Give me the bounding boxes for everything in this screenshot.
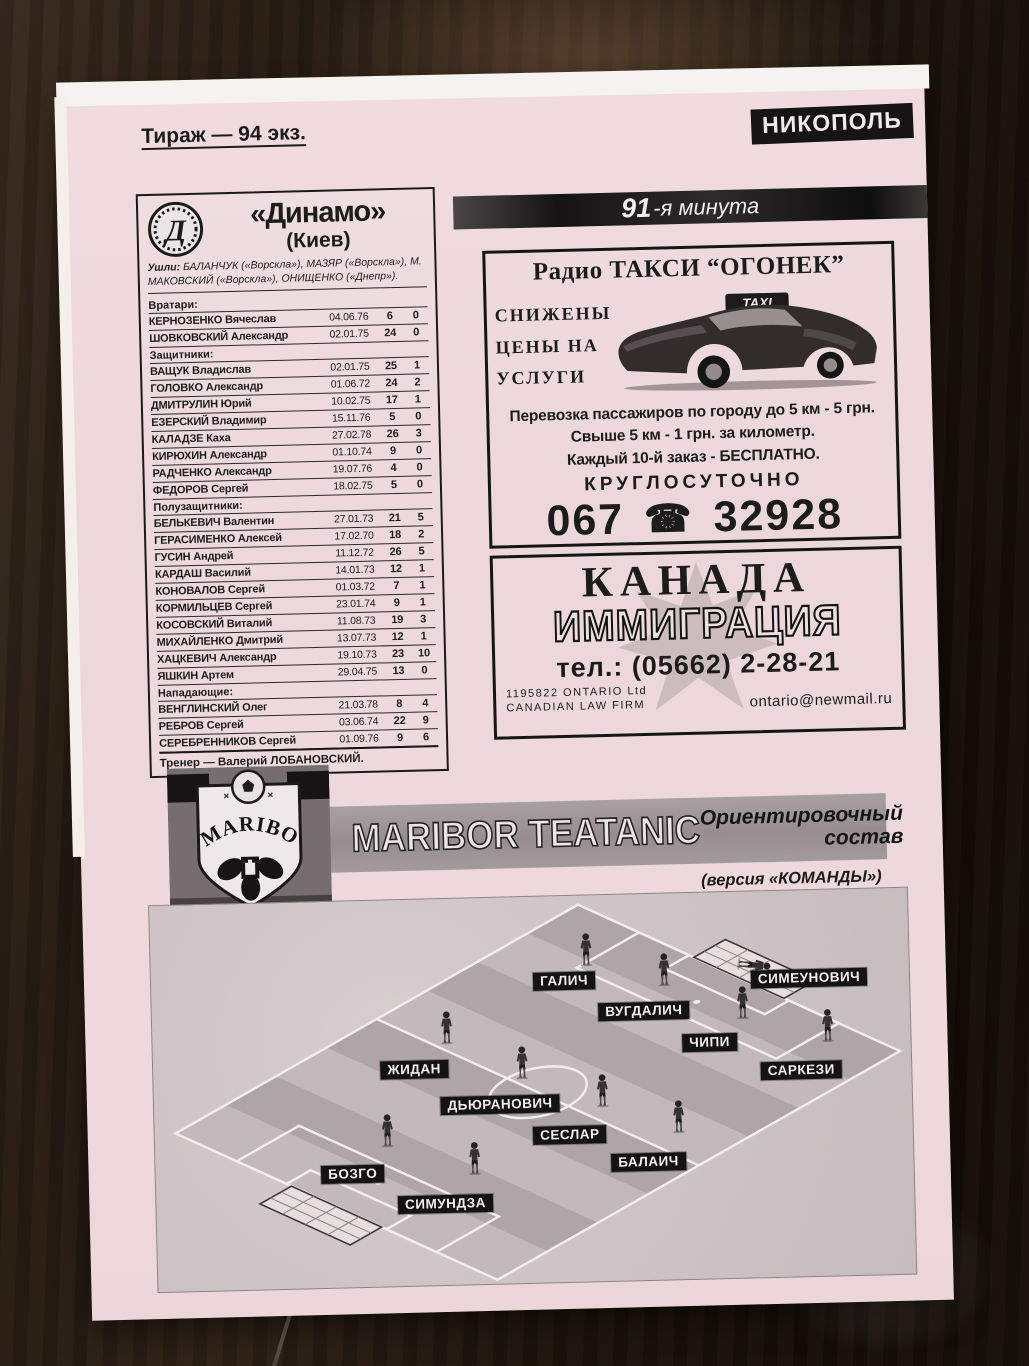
- taxi-slogan-line: СНИЖЕНЫ: [494, 298, 613, 332]
- player-caps: 21: [381, 512, 409, 525]
- player-caps: 24: [376, 327, 404, 340]
- lineup-pitch-figure: СИМЕУНОВИЧГАЛИЧВУГДАЛИЧЧИПИСАРКЕЗИЖИДАНД…: [148, 887, 917, 1293]
- player-caps: 5: [378, 411, 406, 424]
- player-goals: 5: [409, 545, 433, 558]
- player-birthdate: 27.01.73: [327, 513, 381, 526]
- program-page: Тираж — 94 экз. НИКОПОЛЬ Д «Динамо» (Кие…: [62, 74, 954, 1321]
- player-birthdate: 19.07.76: [325, 463, 379, 476]
- player-name: ГОЛОВКО Александр: [150, 379, 323, 395]
- roster: Вратари:КЕРНОЗЕНКО Вячеслав04.06.7660ШОВ…: [148, 291, 438, 753]
- player-name: РЕБРОВ Сергей: [159, 717, 332, 733]
- player-birthdate: 01.09.76: [332, 733, 386, 746]
- player-name: КОНОВАЛОВ Сергей: [155, 582, 328, 598]
- probable-lineup-label: Ориентировочный состав: [700, 803, 904, 853]
- taxi-car-area: TAXI: [612, 280, 887, 404]
- player-caps: 25: [377, 360, 405, 373]
- player-goals: 2: [405, 376, 429, 389]
- player-label: СИМЕУНОВИЧ: [751, 968, 868, 989]
- player-caps: 9: [386, 732, 414, 745]
- player-birthdate: 19.10.73: [330, 649, 384, 662]
- taxi-phone: 067 ☎ 32928: [499, 489, 890, 548]
- player-caps: 18: [381, 529, 409, 542]
- taxi-ad: Радио ТАКСИ “ОГОНЕК” СНИЖЕНЫ ЦЕНЫ НА УСЛ…: [482, 241, 901, 549]
- player-birthdate: 18.02.75: [326, 480, 380, 493]
- player-birthdate: 29.04.75: [330, 666, 384, 679]
- player-name: РАДЧЕНКО Александр: [152, 464, 325, 480]
- banner-number: 91: [621, 193, 652, 225]
- player-name: ФЕДОРОВ Сергей: [153, 481, 326, 497]
- canada-immigration-ad: КАНАДА ИММИГРАЦИЯ тел.: (05662) 2-28-21 …: [490, 546, 906, 740]
- player-name: ЕЗЕРСКИЙ Владимир: [151, 413, 324, 429]
- player-birthdate: 11.08.73: [329, 615, 383, 628]
- player-caps: 8: [385, 698, 413, 711]
- player-goals: 9: [414, 714, 438, 727]
- player-goals: 0: [407, 444, 431, 457]
- player-birthdate: 15.11.76: [324, 412, 378, 425]
- player-name: КАРДАШ Василий: [155, 565, 328, 581]
- player-caps: 26: [379, 428, 407, 441]
- team-city: (Киев): [211, 226, 427, 255]
- departures-label: Ушли:: [147, 261, 180, 274]
- dynamo-titles: «Динамо» (Киев): [210, 196, 426, 255]
- player-caps: 24: [377, 377, 405, 390]
- player-goals: 0: [406, 410, 430, 423]
- player-caps: 5: [380, 479, 408, 492]
- player-goals: 10: [412, 647, 436, 660]
- player-caps: 12: [382, 563, 410, 576]
- player-name: ГЕРАСИМЕНКО Алексей: [154, 531, 327, 547]
- player-name: ЯШКИН Артем: [157, 667, 330, 683]
- player-goals: 0: [407, 461, 431, 474]
- player-goals: 1: [410, 562, 434, 575]
- player-name: ГУСИН Андрей: [154, 548, 327, 564]
- player-goals: 3: [411, 613, 435, 626]
- player-label: БОЗГО: [321, 1165, 385, 1185]
- player-goals: 6: [414, 731, 438, 744]
- pitch-diagram: [149, 888, 916, 1292]
- player-goals: 0: [404, 326, 428, 339]
- player-caps: 13: [384, 665, 412, 678]
- departures-note: Ушли: БАЛАНЧУК («Ворскла»), МАЗЯР («Ворс…: [147, 255, 427, 294]
- player-label: ВУГДАЛИЧ: [598, 1001, 690, 1021]
- svg-text:Д: Д: [162, 214, 188, 248]
- player-label: СЕСЛАР: [533, 1125, 607, 1145]
- player-name: КОРМИЛЬЦЕВ Сергей: [156, 599, 329, 615]
- player-birthdate: 17.02.70: [327, 530, 381, 543]
- banner-text: -я минута: [653, 193, 760, 222]
- player-birthdate: 01.03.72: [328, 581, 382, 594]
- player-caps: 7: [382, 580, 410, 593]
- player-name: ХАЦКЕВИЧ Александр: [157, 650, 330, 666]
- player-birthdate: 21.03.78: [331, 699, 385, 712]
- player-label: ДЬЮРАНОВИЧ: [440, 1094, 559, 1115]
- telephone-icon: ☎: [644, 496, 694, 542]
- taxi-ad-middle: СНИЖЕНЫ ЦЕНЫ НА УСЛУГИ TAXI: [494, 280, 887, 406]
- player-caps: 12: [383, 631, 411, 644]
- player-birthdate: 27.02.78: [325, 429, 379, 442]
- player-birthdate: 01.10.74: [325, 446, 379, 459]
- player-caps: 23: [384, 648, 412, 661]
- departures-text: БАЛАНЧУК («Ворскла»), МАЗЯР («Ворскла»),…: [148, 255, 422, 287]
- pitch-surface: [149, 888, 916, 1292]
- player-goals: 0: [404, 309, 428, 322]
- player-label: ГАЛИЧ: [533, 971, 595, 991]
- player-name: БЕЛЬКЕВИЧ Валентин: [154, 514, 327, 530]
- player-name: ШОВКОВСКИЙ Александр: [149, 329, 322, 345]
- player-birthdate: 13.07.73: [329, 632, 383, 645]
- phone-number: 32928: [713, 491, 844, 543]
- player-goals: 2: [409, 528, 433, 541]
- player-birthdate: 14.01.73: [328, 564, 382, 577]
- player-birthdate: 23.01.74: [329, 598, 383, 611]
- player-goals: 0: [408, 478, 432, 491]
- player-label: ЧИПИ: [682, 1033, 737, 1052]
- canada-registration: 1195822 ONTARIO Ltd CANADIAN LAW FIRM: [506, 684, 648, 716]
- canada-email: ontario@newmail.ru: [749, 690, 892, 710]
- city-badge: НИКОПОЛЬ: [751, 103, 914, 145]
- player-goals: 1: [406, 393, 430, 406]
- taxi-slogan-line: УСЛУГИ: [496, 361, 615, 395]
- player-caps: 22: [386, 715, 414, 728]
- player-goals: 1: [411, 630, 435, 643]
- player-name: КИРЮХИН Александр: [152, 447, 325, 463]
- phone-prefix: 067: [546, 496, 625, 547]
- player-birthdate: 10.02.75: [324, 395, 378, 408]
- player-caps: 9: [379, 445, 407, 458]
- player-caps: 4: [379, 462, 407, 475]
- player-name: ВАЩУК Владислав: [150, 362, 323, 378]
- section-banner-91-minute: 91 -я минута: [453, 185, 928, 230]
- dynamo-logo: Д: [146, 200, 205, 259]
- taxi-slogan-line: ЦЕНЫ НА: [495, 329, 614, 363]
- player-caps: 9: [383, 597, 411, 610]
- maribor-club-logo: × × MARIBOR: [167, 765, 333, 919]
- player-goals: 4: [413, 697, 437, 710]
- dynamo-header: Д «Динамо» (Киев): [146, 194, 426, 259]
- player-name: КОСОВСКИЙ Виталий: [156, 616, 329, 632]
- player-label: ЖИДАН: [380, 1060, 448, 1080]
- player-birthdate: 02.01.75: [323, 361, 377, 374]
- print-run-note: Тираж — 94 экз.: [141, 121, 306, 149]
- player-goals: 0: [412, 664, 436, 677]
- player-caps: 26: [381, 546, 409, 559]
- player-caps: 19: [383, 614, 411, 627]
- player-goals: 1: [410, 579, 434, 592]
- player-label: СИМУНДЗА: [398, 1194, 493, 1214]
- dynamo-roster-box: Д «Динамо» (Киев) Ушли: БАЛАНЧУК («Ворск…: [136, 187, 449, 778]
- taxi-car-illustration: TAXI: [612, 280, 883, 399]
- player-name: КЕРНОЗЕНКО Вячеслав: [149, 312, 322, 328]
- photo-of-program-page: Тираж — 94 экз. НИКОПОЛЬ Д «Динамо» (Кие…: [0, 0, 1029, 1366]
- player-caps: 17: [378, 394, 406, 407]
- player-birthdate: 11.12.72: [327, 547, 381, 560]
- player-birthdate: 04.06.76: [322, 311, 376, 324]
- player-birthdate: 01.06.72: [323, 378, 377, 391]
- player-goals: 1: [405, 359, 429, 372]
- player-goals: 3: [406, 427, 430, 440]
- svg-text:×: ×: [267, 790, 273, 801]
- taxi-terms: Перевозка пассажиров по городу до 5 км -…: [497, 397, 889, 474]
- maribor-title: MARIBOR TEATANIC: [351, 808, 701, 861]
- player-name: КАЛАДЗЕ Каха: [152, 430, 325, 446]
- player-birthdate: 02.01.75: [322, 328, 376, 341]
- player-caps: 6: [376, 310, 404, 323]
- svg-text:×: ×: [223, 791, 229, 802]
- player-name: МИХАЙЛЕНКО Дмитрий: [157, 633, 330, 649]
- immigration-title: ИММИГРАЦИЯ: [504, 598, 891, 650]
- player-goals: 1: [411, 596, 435, 609]
- player-name: ВЕНГЛИНСКИЙ Олег: [158, 700, 331, 716]
- player-label: БАЛАИЧ: [611, 1152, 686, 1172]
- player-name: ДМИТРУЛИН Юрий: [151, 396, 324, 412]
- player-birthdate: 03.06.74: [332, 716, 386, 729]
- taxi-slogan: СНИЖЕНЫ ЦЕНЫ НА УСЛУГИ: [494, 298, 614, 395]
- player-goals: 5: [409, 511, 433, 524]
- player-label: САРКЕЗИ: [761, 1060, 842, 1080]
